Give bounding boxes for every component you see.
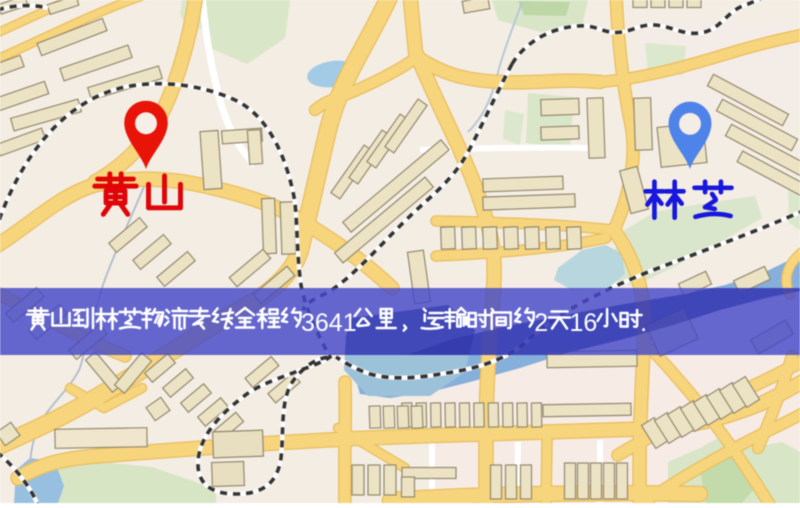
svg-text:3641: 3641: [301, 309, 357, 337]
svg-text:2: 2: [534, 309, 548, 337]
svg-text:16: 16: [570, 309, 598, 337]
svg-text:.: .: [640, 309, 647, 337]
